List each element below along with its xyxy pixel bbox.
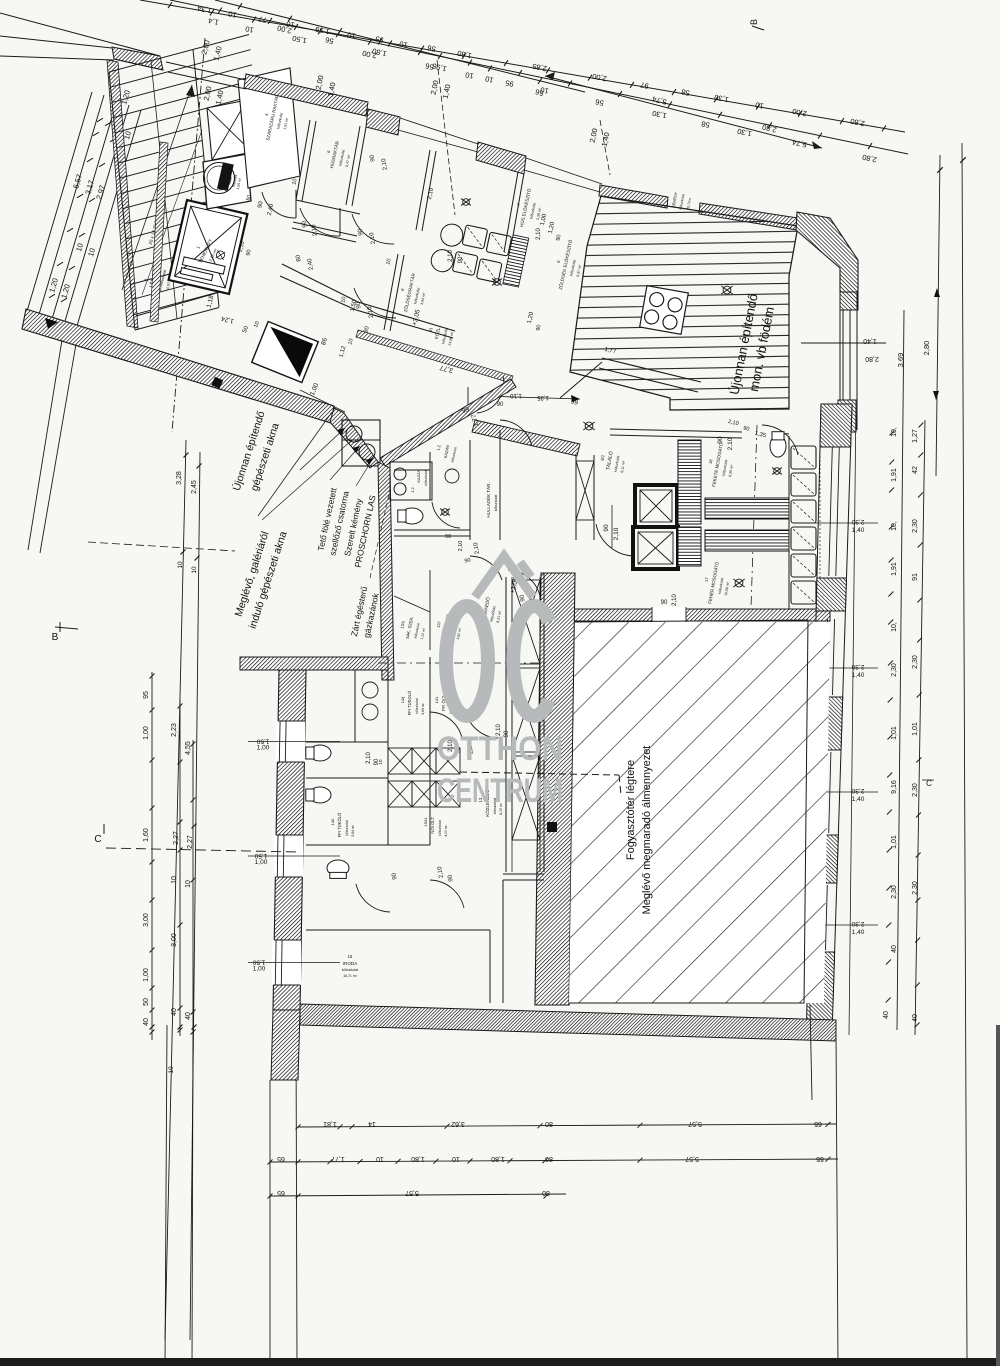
svg-text:kőburkolat: kőburkolat bbox=[438, 820, 442, 836]
svg-text:1,50: 1,50 bbox=[256, 738, 269, 745]
svg-text:B: B bbox=[749, 19, 759, 25]
svg-text:1,80: 1,80 bbox=[491, 1155, 505, 1162]
svg-text:2,10: 2,10 bbox=[448, 250, 454, 262]
svg-text:140: 140 bbox=[330, 818, 335, 825]
svg-text:1,91: 1,91 bbox=[891, 468, 898, 482]
svg-text:95: 95 bbox=[143, 691, 150, 699]
svg-text:1,27: 1,27 bbox=[912, 429, 919, 443]
svg-text:80: 80 bbox=[545, 1120, 553, 1127]
svg-text:2,30: 2,30 bbox=[851, 518, 864, 525]
svg-text:5,57: 5,57 bbox=[685, 1155, 699, 1162]
svg-text:1,40: 1,40 bbox=[863, 337, 877, 344]
svg-text:Meglévő megmaradó álmennyezet: Meglévő megmaradó álmennyezet bbox=[641, 746, 653, 915]
svg-text:CENTRUM: CENTRUM bbox=[437, 772, 563, 810]
svg-text:2,10: 2,10 bbox=[613, 527, 620, 540]
svg-text:40: 40 bbox=[171, 1008, 178, 1016]
svg-text:10: 10 bbox=[378, 759, 383, 765]
svg-text:10: 10 bbox=[168, 1066, 175, 1074]
svg-text:10: 10 bbox=[376, 1155, 384, 1162]
svg-text:14/j: 14/j bbox=[400, 697, 405, 704]
svg-text:NŐI ÖLT.: NŐI ÖLT. bbox=[430, 816, 435, 833]
svg-text:9,16: 9,16 bbox=[891, 780, 898, 794]
svg-text:90: 90 bbox=[445, 534, 451, 540]
svg-text:1,50: 1,50 bbox=[252, 959, 265, 966]
svg-text:2,30: 2,30 bbox=[912, 655, 919, 669]
svg-text:1,00: 1,00 bbox=[253, 966, 266, 973]
svg-text:FFI TÜKÖLŐ: FFI TÜKÖLŐ bbox=[337, 812, 342, 837]
svg-text:kőburkolat: kőburkolat bbox=[342, 968, 358, 972]
svg-text:1,80: 1,80 bbox=[411, 1155, 425, 1162]
svg-text:3,00: 3,00 bbox=[143, 913, 150, 927]
svg-text:14: 14 bbox=[368, 1120, 376, 1127]
svg-text:KAZÁN: KAZÁN bbox=[416, 469, 421, 482]
svg-text:5,57: 5,57 bbox=[405, 1189, 419, 1196]
svg-text:1,01: 1,01 bbox=[891, 726, 898, 740]
svg-text:2,30: 2,30 bbox=[851, 920, 864, 927]
svg-text:16: 16 bbox=[348, 954, 353, 959]
svg-text:1,35: 1,35 bbox=[537, 394, 549, 400]
svg-text:2,10: 2,10 bbox=[366, 752, 372, 764]
svg-text:10,: 10, bbox=[891, 427, 898, 437]
svg-text:Fogyasztótér légtere: Fogyasztótér légtere bbox=[625, 760, 637, 860]
svg-text:65: 65 bbox=[814, 1120, 822, 1127]
svg-text:1,10: 1,10 bbox=[510, 392, 522, 398]
svg-text:1,00: 1,00 bbox=[143, 968, 150, 982]
svg-text:2,30: 2,30 bbox=[891, 885, 898, 899]
svg-text:42: 42 bbox=[912, 466, 919, 474]
svg-text:10: 10 bbox=[385, 258, 392, 265]
svg-text:3,28: 3,28 bbox=[176, 471, 183, 485]
svg-text:4,00 m²: 4,00 m² bbox=[444, 824, 448, 836]
svg-text:90: 90 bbox=[535, 324, 542, 331]
svg-text:2,80: 2,80 bbox=[922, 341, 931, 356]
svg-text:65: 65 bbox=[277, 1155, 285, 1162]
svg-text:2,10: 2,10 bbox=[672, 594, 678, 606]
svg-text:kőburkolat: kőburkolat bbox=[345, 820, 349, 836]
svg-text:1501: 1501 bbox=[423, 817, 428, 827]
svg-text:3,84 m²: 3,84 m² bbox=[421, 702, 425, 714]
svg-text:10: 10 bbox=[291, 178, 298, 185]
svg-text:10: 10 bbox=[185, 880, 192, 888]
svg-text:2,30: 2,30 bbox=[912, 783, 919, 797]
svg-text:1,01: 1,01 bbox=[912, 722, 919, 736]
svg-text:kőburkolat: kőburkolat bbox=[424, 470, 428, 486]
svg-text:2,10: 2,10 bbox=[458, 541, 464, 552]
svg-text:10: 10 bbox=[191, 566, 198, 574]
svg-text:kőburkolat: kőburkolat bbox=[494, 495, 498, 512]
svg-text:91: 91 bbox=[912, 573, 919, 581]
svg-text:2,30: 2,30 bbox=[851, 787, 864, 794]
svg-text:1,2: 1,2 bbox=[410, 486, 415, 492]
svg-text:90: 90 bbox=[603, 524, 610, 532]
svg-text:2,30: 2,30 bbox=[851, 663, 864, 670]
svg-text:kőburkolat: kőburkolat bbox=[415, 698, 419, 714]
svg-text:2,10: 2,10 bbox=[536, 228, 542, 240]
svg-text:2,10: 2,10 bbox=[727, 437, 734, 450]
svg-text:10,: 10, bbox=[891, 622, 898, 632]
svg-text:10: 10 bbox=[340, 296, 347, 303]
svg-text:HULLADÉK TÁR.: HULLADÉK TÁR. bbox=[485, 482, 491, 517]
svg-text:2,80: 2,80 bbox=[865, 355, 879, 362]
svg-text:1,77: 1,77 bbox=[331, 1155, 345, 1162]
svg-text:1,00: 1,00 bbox=[143, 726, 150, 740]
svg-text:B: B bbox=[52, 632, 59, 643]
svg-text:1,40: 1,40 bbox=[852, 796, 865, 803]
svg-text:3,84 m²: 3,84 m² bbox=[351, 824, 355, 836]
svg-text:OTTHON: OTTHON bbox=[437, 730, 563, 768]
svg-text:90: 90 bbox=[661, 600, 668, 606]
svg-text:50: 50 bbox=[143, 998, 150, 1006]
svg-text:10: 10 bbox=[177, 561, 184, 569]
svg-text:10: 10 bbox=[171, 876, 178, 884]
svg-text:1,40: 1,40 bbox=[852, 672, 865, 679]
svg-text:1,91: 1,91 bbox=[891, 562, 898, 576]
svg-text:1,60: 1,60 bbox=[143, 828, 150, 842]
svg-text:1,00: 1,00 bbox=[255, 859, 268, 866]
svg-text:80: 80 bbox=[545, 1155, 553, 1162]
svg-text:2,45: 2,45 bbox=[191, 480, 198, 494]
svg-text:40: 40 bbox=[185, 1012, 192, 1020]
svg-text:40: 40 bbox=[912, 1014, 919, 1022]
svg-text:65: 65 bbox=[277, 1189, 285, 1196]
svg-text:FFI TUSOLÓ: FFI TUSOLÓ bbox=[407, 690, 412, 715]
svg-text:10: 10 bbox=[452, 1155, 460, 1162]
svg-text:1,50: 1,50 bbox=[254, 852, 267, 859]
svg-text:4,55: 4,55 bbox=[185, 741, 192, 755]
svg-text:2,27: 2,27 bbox=[187, 835, 194, 849]
svg-text:40: 40 bbox=[143, 1018, 150, 1026]
svg-text:5,57: 5,57 bbox=[688, 1120, 702, 1127]
svg-text:2,30: 2,30 bbox=[912, 519, 919, 533]
svg-text:10,: 10, bbox=[891, 521, 898, 531]
svg-text:2,30: 2,30 bbox=[891, 663, 898, 677]
svg-text:2,23: 2,23 bbox=[171, 723, 178, 737]
svg-text:141: 141 bbox=[434, 696, 439, 703]
svg-text:2,27: 2,27 bbox=[173, 831, 180, 845]
svg-text:80: 80 bbox=[542, 1189, 550, 1196]
svg-text:1,01: 1,01 bbox=[891, 835, 898, 849]
svg-text:90: 90 bbox=[497, 402, 504, 408]
svg-text:2,30: 2,30 bbox=[912, 881, 919, 895]
svg-text:65: 65 bbox=[816, 1155, 824, 1162]
svg-text:90: 90 bbox=[555, 234, 562, 241]
svg-text:1,40: 1,40 bbox=[852, 929, 865, 936]
svg-text:40: 40 bbox=[883, 1011, 890, 1019]
svg-text:90: 90 bbox=[458, 256, 464, 263]
svg-text:3,62: 3,62 bbox=[451, 1120, 465, 1127]
svg-text:1,40: 1,40 bbox=[852, 527, 865, 534]
svg-text:16,71 m²: 16,71 m² bbox=[343, 974, 358, 978]
svg-text:1,00: 1,00 bbox=[257, 745, 270, 752]
svg-text:40: 40 bbox=[891, 945, 898, 953]
svg-text:C: C bbox=[94, 834, 101, 845]
svg-text:1,81: 1,81 bbox=[323, 1120, 337, 1127]
svg-text:IRODA: IRODA bbox=[343, 961, 358, 966]
